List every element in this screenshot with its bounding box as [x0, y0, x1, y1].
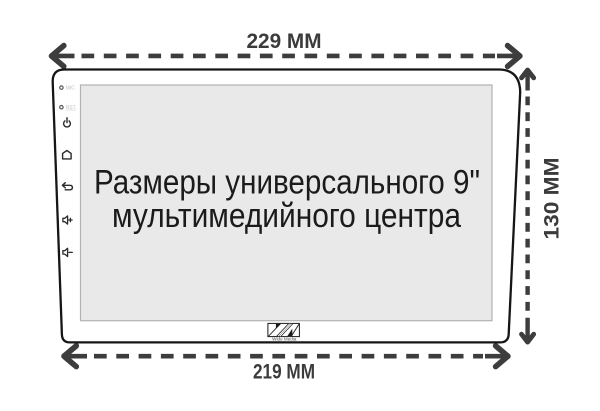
- svg-text:Размеры универсального 9": Размеры универсального 9": [94, 164, 480, 202]
- svg-text:Wide Media: Wide Media: [272, 336, 297, 341]
- svg-text:мультимедийного центра: мультимедийного центра: [112, 197, 462, 235]
- svg-text:219 ММ: 219 ММ: [253, 360, 315, 384]
- svg-text:229 ММ: 229 ММ: [247, 29, 322, 53]
- svg-text:MIC: MIC: [66, 85, 76, 91]
- svg-text:130 ММ: 130 ММ: [540, 158, 564, 240]
